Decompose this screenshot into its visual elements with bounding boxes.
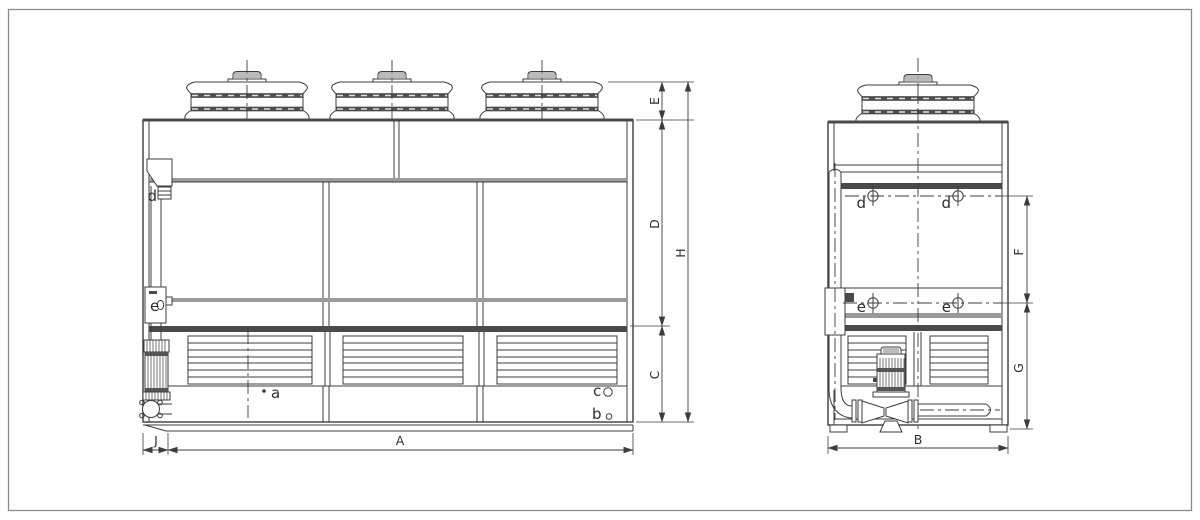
pump-volute-front [143,401,160,418]
point-a-dot [262,389,266,393]
front-view: d e a c b E D C H J A [140,60,694,455]
dim-J: J [153,433,158,448]
dim-H: H [673,248,688,257]
base-foot-left [830,425,847,432]
dim-G: G [1011,363,1026,373]
label-d-left: d [856,194,866,212]
label-d: d [147,187,157,205]
base-foot-right [990,425,1007,432]
drawing-page: d e a c b E D C H J A [0,0,1200,520]
dim-A: A [396,433,405,448]
dim-E: E [647,97,662,105]
label-e: e [150,297,159,315]
dim-B: B [914,432,923,447]
label-b: b [592,405,602,423]
label-c: c [593,382,601,400]
pump-motor-front [145,352,168,392]
label-a: a [271,384,280,402]
side-view: d d e e F G B [825,58,1033,454]
dim-C: C [647,370,662,379]
dim-D: D [647,219,662,229]
drawing-canvas: d e a c b E D C H J A [0,0,1200,520]
dim-F: F [1011,248,1026,255]
label-d-right: d [941,194,951,212]
label-e-right: e [942,298,951,316]
connection-d-flange [158,187,171,199]
label-e-left: e [857,298,866,316]
